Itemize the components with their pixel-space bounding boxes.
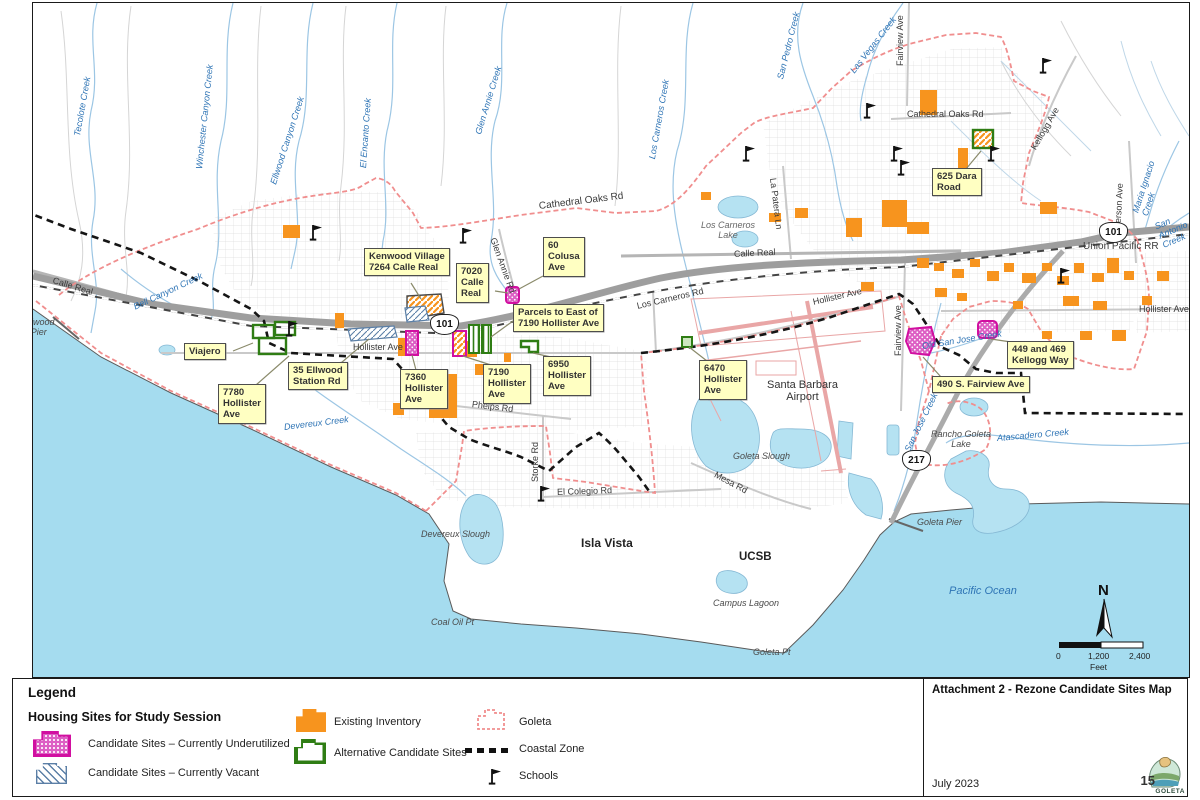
site-parcels-east	[469, 325, 479, 353]
north-label: N	[1098, 582, 1109, 599]
scale-tick: 1,200	[1088, 651, 1109, 661]
site-callout-35-ellwood: 35 Ellwood Station Rd	[288, 362, 348, 390]
road-label: El Colegio Rd	[557, 485, 612, 497]
road-label: Hollister Ave	[1139, 304, 1189, 314]
place-label: Santa Barbara Airport	[767, 379, 838, 404]
road-label: Fairview Ave	[893, 305, 903, 356]
ocean-label: Pacific Ocean	[949, 585, 1017, 597]
legend-item-label: Existing Inventory	[334, 716, 421, 728]
site-6470-hollister	[682, 337, 692, 347]
place-label: Rancho Goleta Lake	[931, 429, 991, 449]
site-callout-7360: 7360 Hollister Ave	[400, 369, 448, 409]
site-callout-7780: 7780 Hollister Ave	[218, 384, 266, 424]
goleta-logo-text: GOLETA	[1155, 788, 1185, 795]
swatch-underutilized-icon	[33, 731, 71, 757]
road-label: Hollister Ave	[353, 342, 403, 352]
swatch-existing-inventory-icon	[296, 709, 326, 732]
swatch-vacant-icon	[36, 763, 67, 784]
place-label: Goleta Pier	[917, 517, 962, 527]
site-7360-hollister	[406, 331, 418, 355]
road-label: Union Pacific RR	[1083, 241, 1159, 252]
place-label: UCSB	[739, 551, 772, 564]
scale-bar-graphic	[1059, 642, 1143, 648]
road-label: Cathedral Oaks Rd	[907, 109, 984, 119]
map-canvas: Tecolote Creek Winchester Canyon Creek E…	[32, 2, 1190, 678]
place-label: Devereux Slough	[421, 529, 490, 539]
title-block: Attachment 2 - Rezone Candidate Sites Ma…	[923, 679, 1188, 796]
site-7190-hollister	[453, 331, 466, 356]
legend-item-label: Coastal Zone	[519, 743, 584, 755]
scale-tick: 2,400	[1129, 651, 1150, 661]
legend-item-label: Candidate Sites – Currently Vacant	[88, 767, 259, 779]
site-callout-6950: 6950 Hollister Ave	[543, 356, 591, 396]
road-label: Fairview Ave	[895, 15, 905, 66]
road-label: Storke Rd	[530, 442, 540, 482]
map-date: July 2023	[932, 778, 979, 790]
site-callout-kenwood: Kenwood Village 7264 Calle Real	[364, 248, 450, 276]
place-label: Goleta Pt	[753, 647, 791, 657]
legend-subheading: Housing Sites for Study Session	[28, 710, 221, 724]
page-number: 15	[1141, 773, 1155, 788]
scale-tick: 0	[1056, 651, 1061, 661]
site-callout-7020: 7020 Calle Real	[456, 263, 489, 303]
swatch-coastal-zone-icon	[465, 748, 513, 753]
site-callout-625-dara: 625 Dara Road	[932, 168, 982, 196]
site-625-dara	[973, 130, 993, 148]
site-callout-60-colusa: 60 Colusa Ave	[543, 237, 585, 277]
place-label: Campus Lagoon	[713, 598, 779, 608]
place-label: Isla Vista	[581, 537, 633, 550]
legend-heading: Legend	[28, 685, 76, 700]
swatch-goleta-icon	[476, 708, 506, 731]
place-label: Los Carneros Lake	[701, 220, 755, 240]
scale-unit: Feet	[1090, 662, 1107, 672]
legend-item-label: Alternative Candidate Sites	[334, 747, 467, 759]
map-sheet: Tecolote Creek Winchester Canyon Creek E…	[0, 0, 1200, 800]
site-callout-6470: 6470 Hollister Ave	[699, 360, 747, 400]
legend-item-label: Candidate Sites – Currently Underutilize…	[88, 738, 290, 750]
swatch-alternative-icon	[294, 739, 326, 764]
place-label: Ellwood Pier	[32, 317, 55, 337]
swatch-schools-flag-icon	[487, 767, 503, 785]
site-callout-viajero: Viajero	[184, 343, 226, 360]
map-title: Attachment 2 - Rezone Candidate Sites Ma…	[932, 684, 1172, 696]
legend-item-label: Goleta	[519, 716, 551, 728]
site-callout-449-469: 449 and 469 Kellogg Way	[1007, 341, 1074, 369]
site-callout-490-fairview: 490 S. Fairview Ave	[932, 376, 1030, 393]
place-label: Goleta Slough	[733, 451, 790, 461]
legend-bar: Legend Housing Sites for Study Session C…	[12, 678, 1188, 797]
place-label: Coal Oil Pt	[431, 617, 474, 627]
legend-item-label: Schools	[519, 770, 558, 782]
site-callout-parcels-east: Parcels to East of 7190 Hollister Ave	[513, 304, 604, 332]
site-callout-7190: 7190 Hollister Ave	[483, 364, 531, 404]
